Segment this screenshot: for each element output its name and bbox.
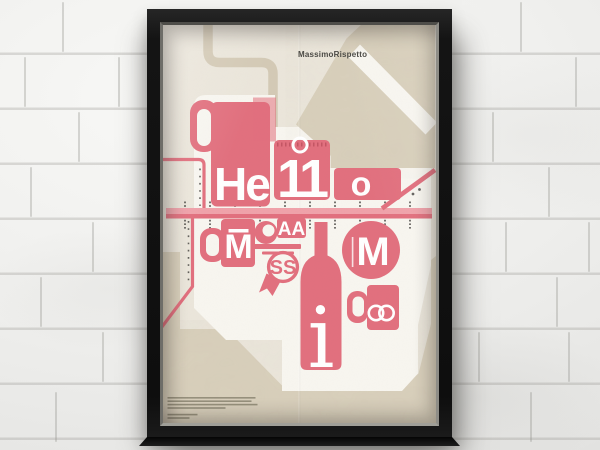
brick-joint (78, 112, 80, 162)
brick-joint (588, 222, 590, 272)
brick-joint (492, 112, 494, 162)
brick-joint (40, 277, 42, 327)
poster-frame: He (147, 9, 452, 439)
brick-joint (102, 332, 104, 382)
brick-joint (520, 2, 522, 52)
brick-joint (92, 222, 94, 272)
brick-joint (530, 392, 532, 442)
brick-joint (24, 57, 26, 107)
brick-joint (55, 392, 57, 442)
scene: He (0, 0, 600, 450)
brick-joint (62, 2, 64, 52)
brick-joint (118, 57, 120, 107)
paper-grain (163, 25, 436, 423)
brick-joint (30, 167, 32, 217)
brick-joint (575, 57, 577, 107)
brick-joint (505, 222, 507, 272)
brick-joint (568, 332, 570, 382)
brick-joint (556, 277, 558, 327)
brick-joint (478, 332, 480, 382)
poster: He (163, 25, 436, 423)
frame-bevel: He (160, 22, 439, 426)
brick-joint (548, 167, 550, 217)
